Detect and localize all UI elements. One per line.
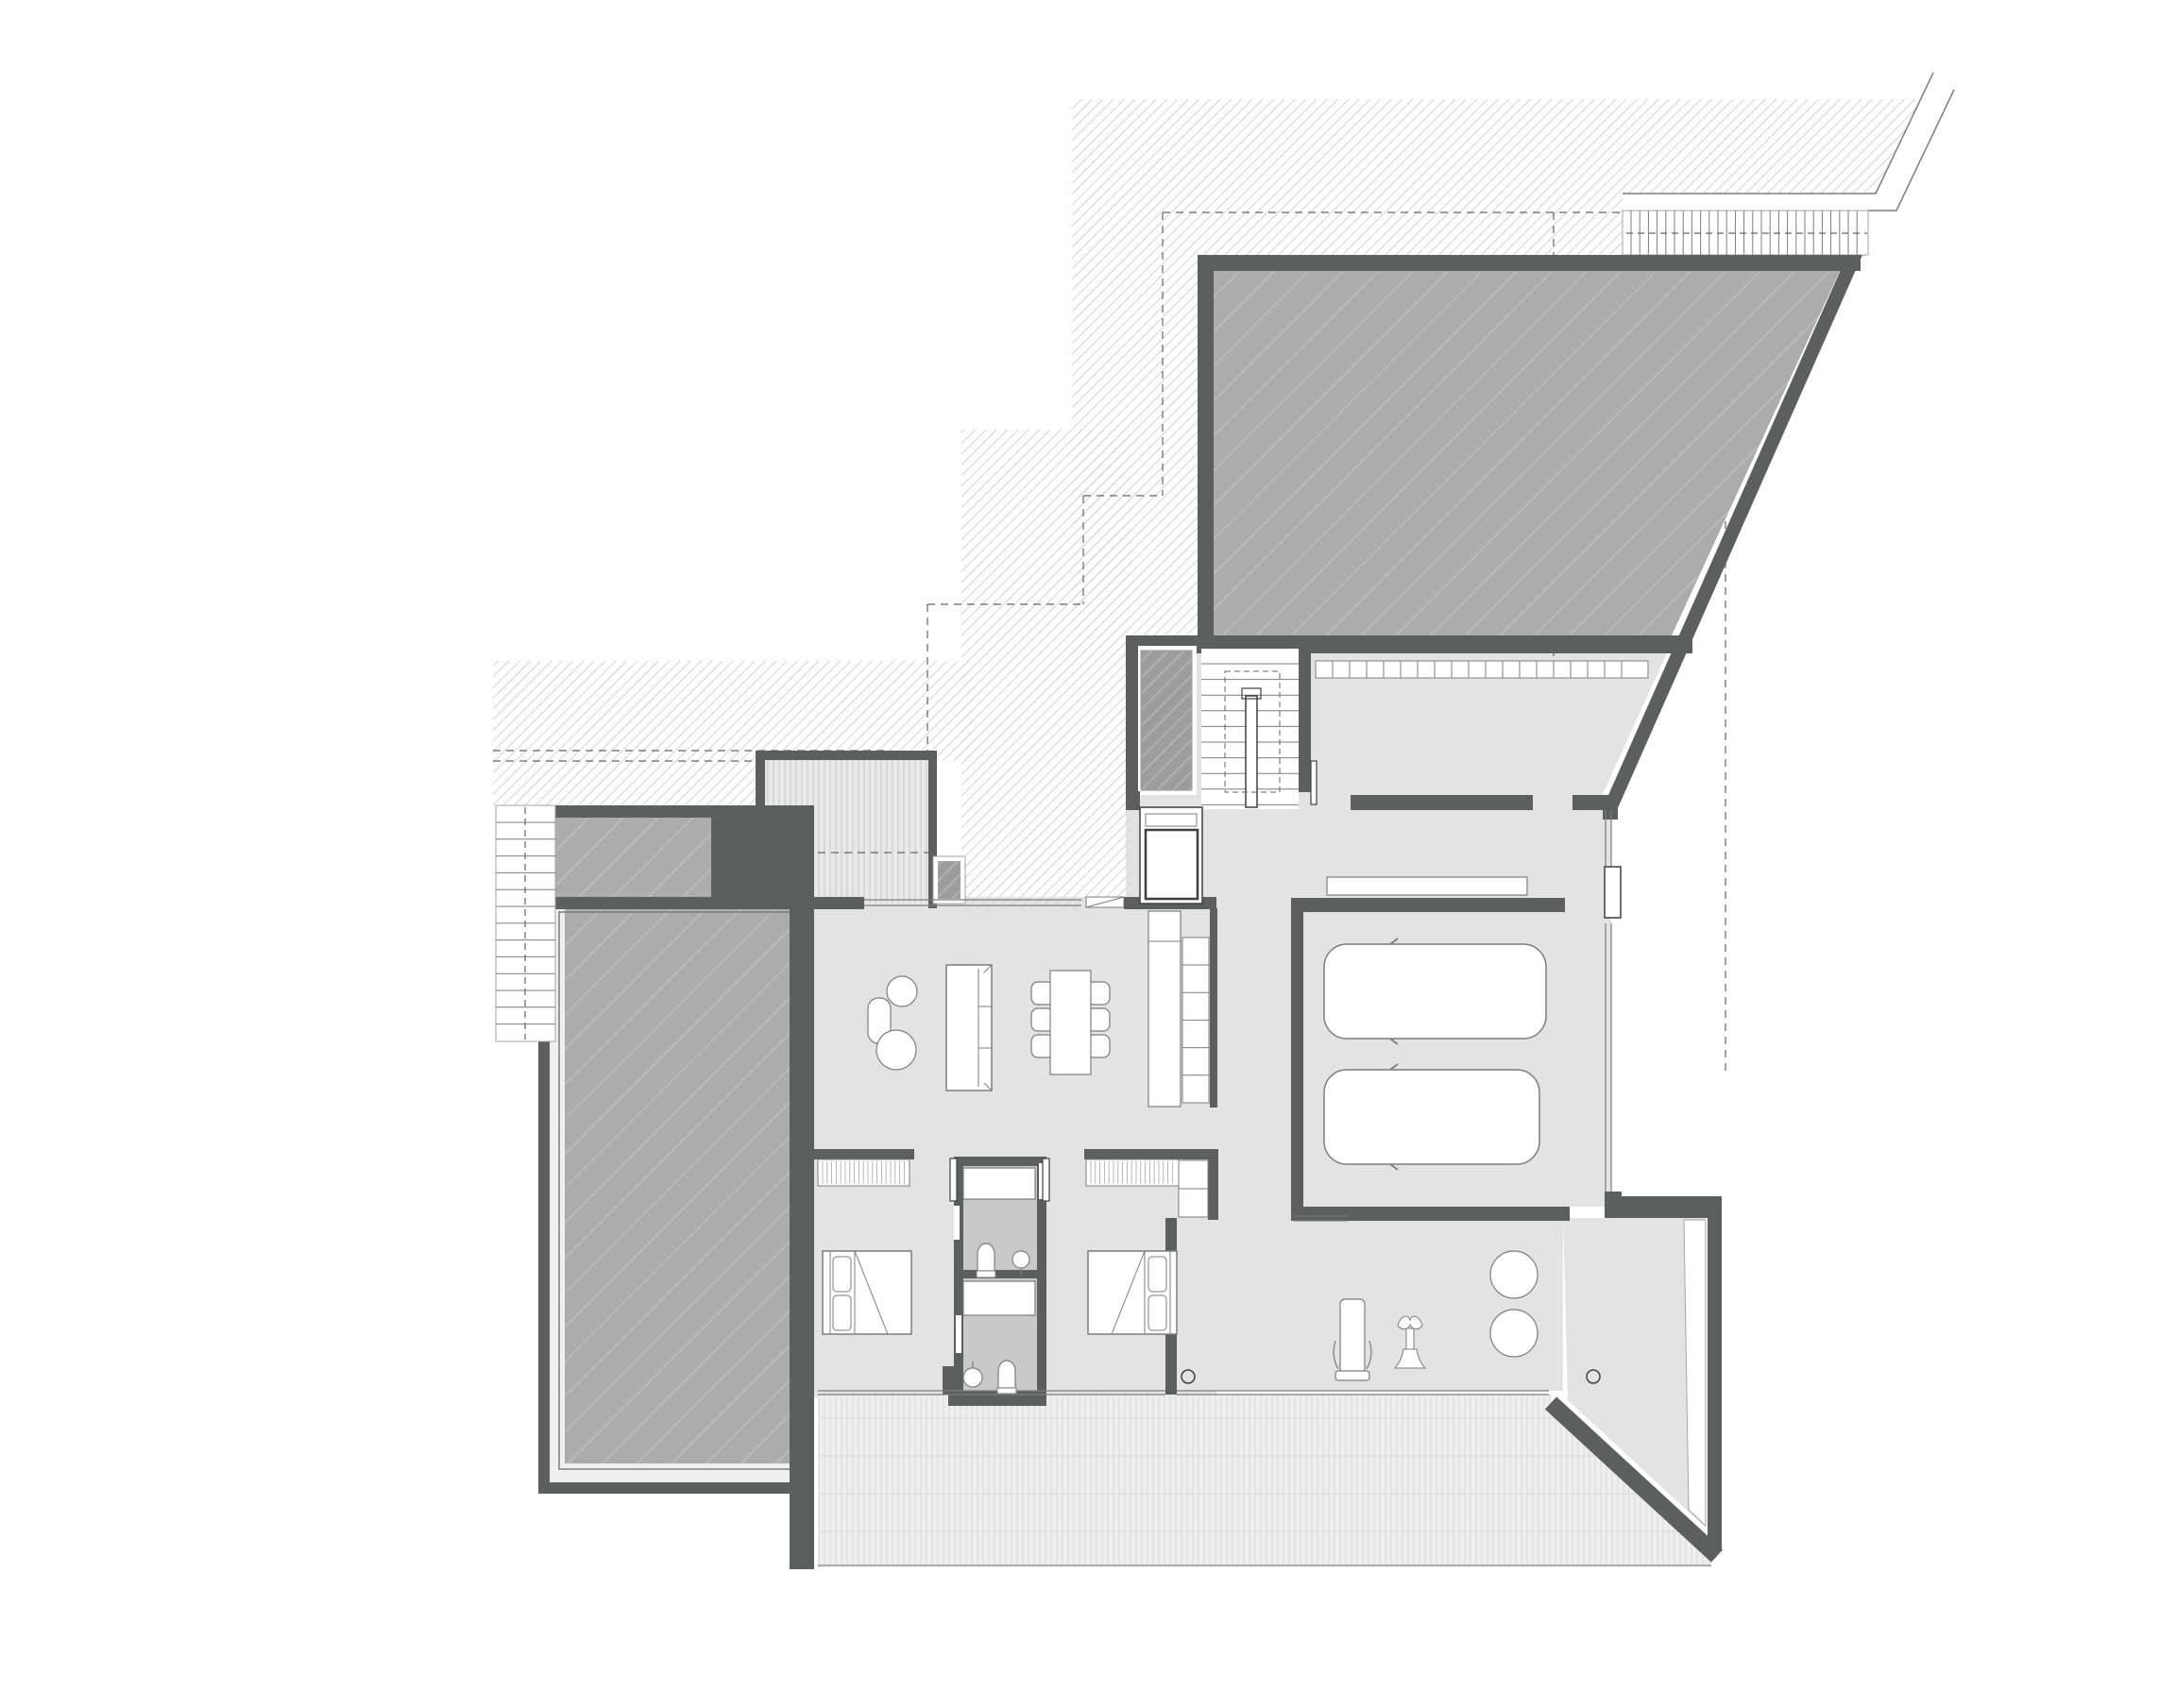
driveway-floor	[1565, 899, 1611, 1207]
vanity-lower	[963, 1281, 1035, 1315]
floor-plan	[0, 0, 2176, 1708]
west-block-east-wall	[790, 805, 814, 1569]
roof-terrace-surface-hatch	[1214, 271, 1840, 635]
bed-2-pillow-b	[1148, 1295, 1166, 1330]
garage-wall-south	[1291, 1207, 1570, 1221]
bedroom1-north-wall	[814, 1149, 914, 1159]
terrain-hatch-southwest	[493, 761, 727, 805]
garage-shelf	[1327, 877, 1527, 895]
hall-south-wall	[1351, 795, 1533, 810]
terrain-hatch-west-upper	[961, 430, 1131, 908]
hall-door-leaf	[1311, 761, 1317, 804]
bath-divider-wall	[954, 1270, 1046, 1278]
entry-glazing-band	[1316, 661, 1648, 678]
living-north-wall-west	[814, 897, 864, 909]
deck-wall-north	[756, 751, 937, 760]
lift-cab	[1146, 830, 1198, 899]
west-block-divider-wall	[538, 897, 814, 909]
plan-layers	[493, 73, 1954, 1569]
bath-wall-north	[954, 1157, 1046, 1166]
bed-1-pillow-a	[833, 1257, 851, 1292]
stairwell-rail	[1246, 696, 1257, 807]
pouf-round-1	[887, 976, 917, 1006]
west-block-frame-gap-s	[550, 1462, 797, 1482]
bedroom1-door-leaf	[950, 1158, 957, 1201]
pouf-round-2	[876, 1030, 916, 1070]
wing-wall-north	[1606, 1196, 1722, 1218]
roof-wall-west	[1198, 255, 1214, 653]
vanity-upper	[963, 1168, 1035, 1199]
gym-bike-stem	[1406, 1328, 1414, 1349]
dining-table	[1050, 971, 1091, 1074]
wing-wall-east	[1708, 1218, 1722, 1548]
gym-bench-bar	[1335, 1371, 1369, 1380]
garage-wall-west	[1291, 898, 1303, 1221]
toilet-lower-tank	[997, 1388, 1016, 1394]
corridor-floor	[1216, 899, 1303, 1221]
car-2	[1324, 1070, 1539, 1164]
toilet-upper-tank	[977, 1271, 995, 1277]
bedroom2-north-wall	[1084, 1149, 1218, 1159]
bed-2-pillow-a	[1148, 1257, 1166, 1292]
kitchen-wall	[1210, 908, 1217, 1108]
stair-block-wall-stub	[1126, 791, 1140, 810]
bedroom2-door-leaf	[1043, 1158, 1049, 1201]
roof-wall-top	[1198, 255, 1861, 271]
garage-wall-north	[1291, 898, 1565, 912]
bed-1-pillow-b	[833, 1295, 851, 1330]
sink-lower	[963, 1368, 982, 1387]
pillar-hatch-hatch	[938, 861, 960, 899]
terrain-hatch-band	[493, 661, 973, 761]
shaft-panel-hatch	[1141, 651, 1192, 790]
lift-top-cell	[1146, 814, 1197, 826]
bedroom2-closet-east-wall	[1208, 1149, 1218, 1220]
west-block-upper-roof-hatch	[550, 818, 711, 897]
bath-door-niche-1	[954, 1206, 960, 1240]
sofa	[946, 965, 992, 1091]
bath-door-niche-3	[956, 1315, 961, 1353]
floor-plan-canvas	[0, 0, 2176, 1708]
side-table-2	[1490, 1310, 1538, 1357]
stair-block-wall-east	[1299, 649, 1311, 792]
car-1	[1324, 944, 1546, 1039]
kitchen-counter	[1148, 911, 1181, 1107]
side-table-1	[1490, 1251, 1538, 1298]
front-door-leaf	[1605, 867, 1621, 918]
toilet-lower	[998, 1361, 1015, 1388]
west-block-main-roof-hatch	[565, 908, 797, 1463]
gym-bench	[1340, 1299, 1365, 1377]
gym-floor	[1177, 1221, 1563, 1391]
stair-block-wall-west	[1126, 635, 1138, 810]
sink-upper	[1012, 1251, 1029, 1268]
west-block-bar-east-wall	[711, 805, 729, 909]
toilet-upper	[977, 1243, 994, 1271]
